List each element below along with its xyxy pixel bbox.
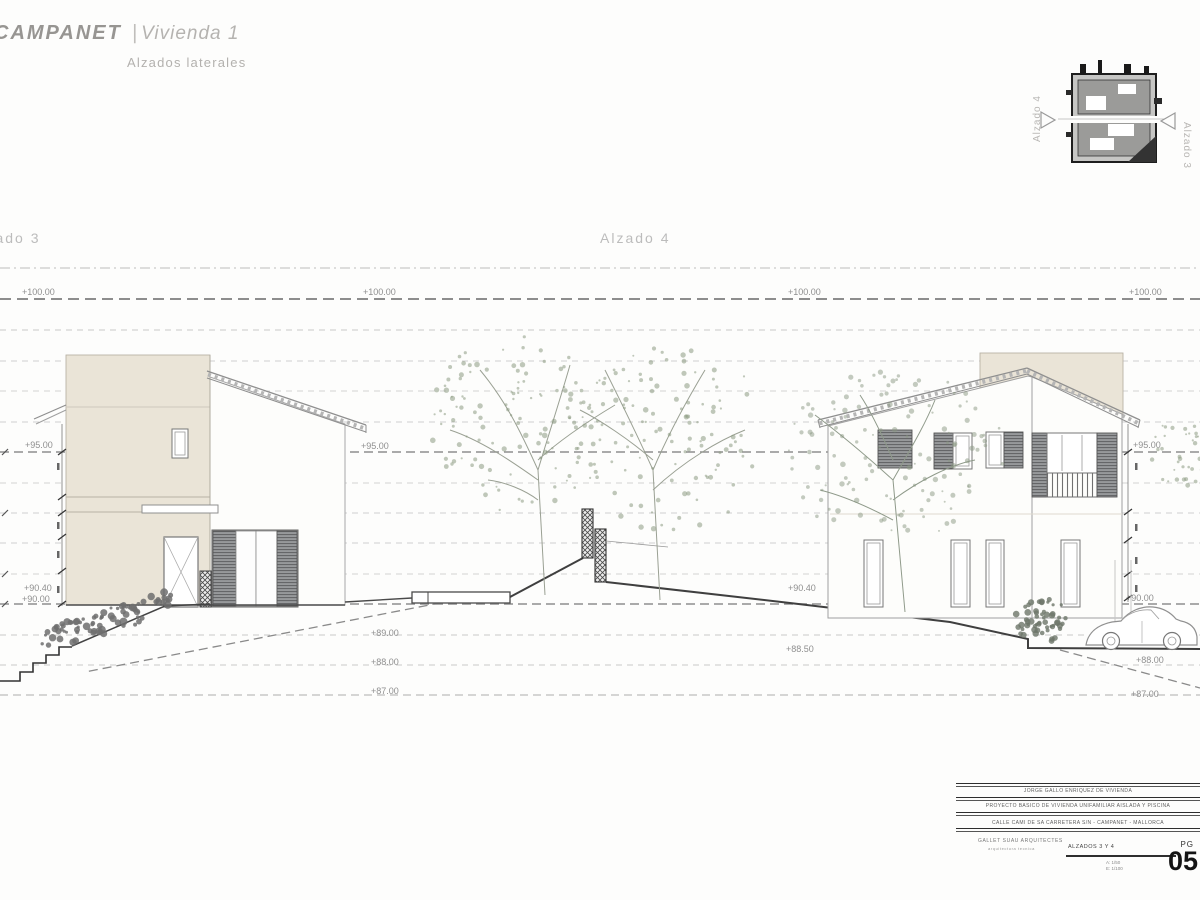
upper-shutter-2 [934, 433, 953, 469]
elevation-drawing: Alzado 3 Alzado 4 +100.00 +100.00 +100.0… [0, 0, 1200, 900]
left-house-upper-window [172, 429, 188, 458]
right-house [818, 353, 1140, 645]
section-label-alzado-3: Alzado 3 [0, 230, 40, 246]
level-label: +100.00 [22, 287, 55, 297]
level-label: +90.00 [22, 594, 50, 604]
key-plan-label-west: Alzado 4 [1032, 95, 1043, 142]
drawing-sheet: CAMPANET|Vivienda 1 Alzados laterales [0, 0, 1200, 900]
left-house-hatched-pier [200, 571, 211, 607]
level-label: +88.00 [1136, 655, 1164, 665]
scale-b: E: 1/100 [1106, 866, 1123, 872]
car-wheel-rear [1164, 633, 1181, 650]
titleblock-divider [1066, 855, 1176, 857]
page-number: 05 [1168, 846, 1198, 877]
level-label: +95.00 [25, 440, 53, 450]
left-house-louver-doors [212, 530, 298, 607]
key-plan-label-east: Alzado 3 [1181, 122, 1192, 169]
level-label: +90.00 [1126, 593, 1154, 603]
level-label: +95.00 [361, 441, 389, 451]
titleblock-project: PROYECTO BASICO DE VIVIENDA UNIFAMILIAR … [956, 803, 1200, 809]
balcony-railing [1047, 473, 1097, 497]
titleblock-client: JORGE GALLO ENRIQUEZ DE VIVIENDA [956, 788, 1200, 794]
level-label: +87.00 [1131, 689, 1159, 699]
ground-slope-up [510, 558, 583, 597]
car-wheel-front [1103, 633, 1120, 650]
gate-pier-2 [595, 529, 606, 582]
section-label-alzado-4: Alzado 4 [600, 230, 670, 246]
natural-ground-dashed-right [1060, 650, 1200, 688]
edge-ticks [2, 449, 8, 607]
balcony-window [1032, 433, 1117, 497]
tree-1-branches [450, 365, 615, 595]
titleblock-architect: GALLET SUAU ARQUITECTES arquitectura tec… [978, 838, 1063, 851]
section-arrow-west [1041, 112, 1055, 128]
titleblock-scales: A: 1/50 E: 1/100 [1106, 860, 1123, 872]
level-label: +90.40 [24, 583, 52, 593]
level-label: +88.50 [786, 644, 814, 654]
level-label: +90.40 [788, 583, 816, 593]
section-arrow-east [1161, 113, 1175, 129]
left-house [2, 355, 366, 607]
low-wall [412, 592, 510, 603]
title-block: JORGE GALLO ENRIQUEZ DE VIVIENDA PROYECT… [956, 780, 1200, 892]
level-label: +87.00 [371, 686, 399, 696]
architect-subtitle: arquitectura tecnica [978, 846, 1063, 851]
architect-name: GALLET SUAU ARQUITECTES [978, 838, 1063, 844]
level-label: +100.00 [1129, 287, 1162, 297]
gate-pier-1 [582, 509, 593, 558]
key-plan: Alzado 4 Alzado 3 [1032, 60, 1192, 169]
level-label: +89.00 [371, 628, 399, 638]
stairs [0, 647, 72, 681]
natural-ground-dashed-left [85, 600, 455, 672]
left-house-canopy [142, 505, 218, 513]
upper-shutter-3 [1004, 432, 1023, 468]
titleblock-location: CALLE CAMI DE SA CARRETERA S/N - CAMPANE… [956, 820, 1200, 826]
level-label: +88.00 [371, 657, 399, 667]
titleblock-sheet-title: ALZADOS 3 Y 4 [1068, 844, 1114, 850]
level-label: +100.00 [363, 287, 396, 297]
level-label: +100.00 [788, 287, 821, 297]
